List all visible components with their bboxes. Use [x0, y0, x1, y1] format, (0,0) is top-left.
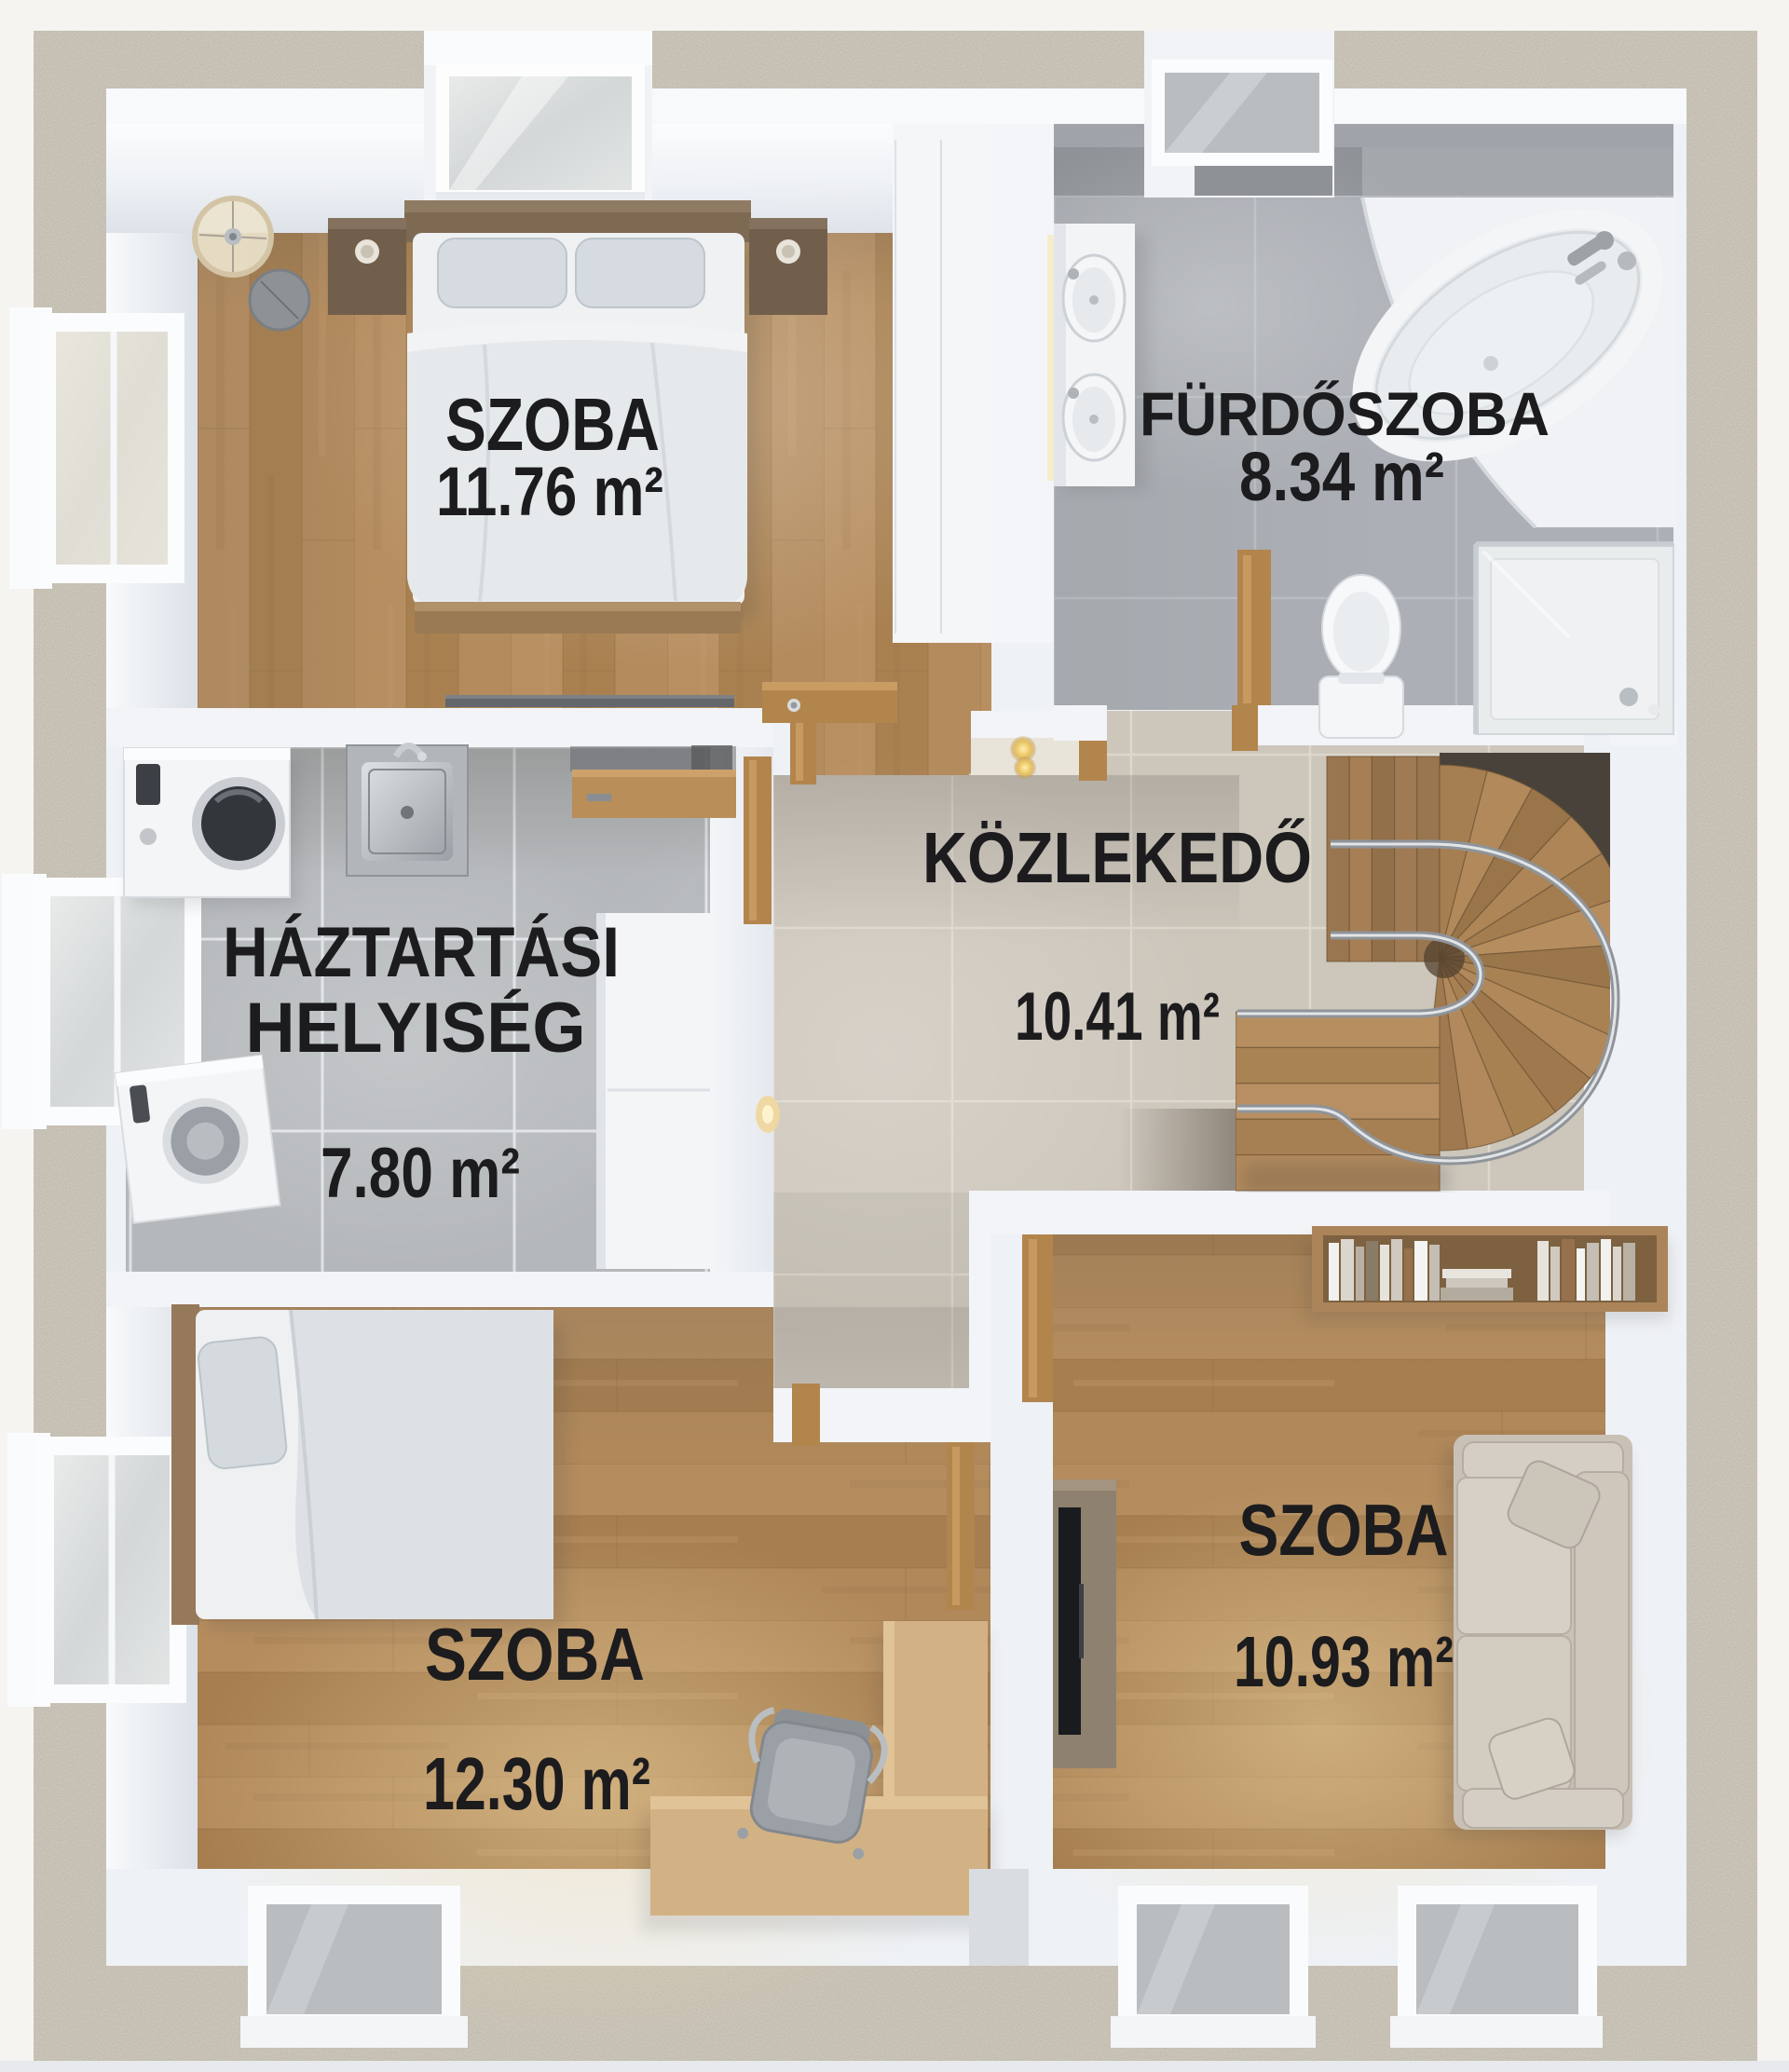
svg-text:11.76 m²: 11.76 m²: [436, 453, 663, 530]
svg-text:10.41 m²: 10.41 m²: [1015, 979, 1220, 1055]
svg-text:10.93 m²: 10.93 m²: [1234, 1622, 1454, 1702]
svg-text:HÁZTARTÁSI: HÁZTARTÁSI: [223, 913, 620, 992]
svg-text:7.80 m²: 7.80 m²: [321, 1134, 520, 1213]
svg-text:12.30 m²: 12.30 m²: [423, 1742, 650, 1825]
svg-text:SZOBA: SZOBA: [425, 1613, 645, 1696]
svg-text:KÖZLEKEDŐ: KÖZLEKEDŐ: [922, 818, 1312, 898]
svg-text:HELYISÉG: HELYISÉG: [246, 988, 586, 1068]
svg-text:8.34 m²: 8.34 m²: [1239, 438, 1444, 515]
svg-text:SZOBA: SZOBA: [1239, 1489, 1449, 1571]
